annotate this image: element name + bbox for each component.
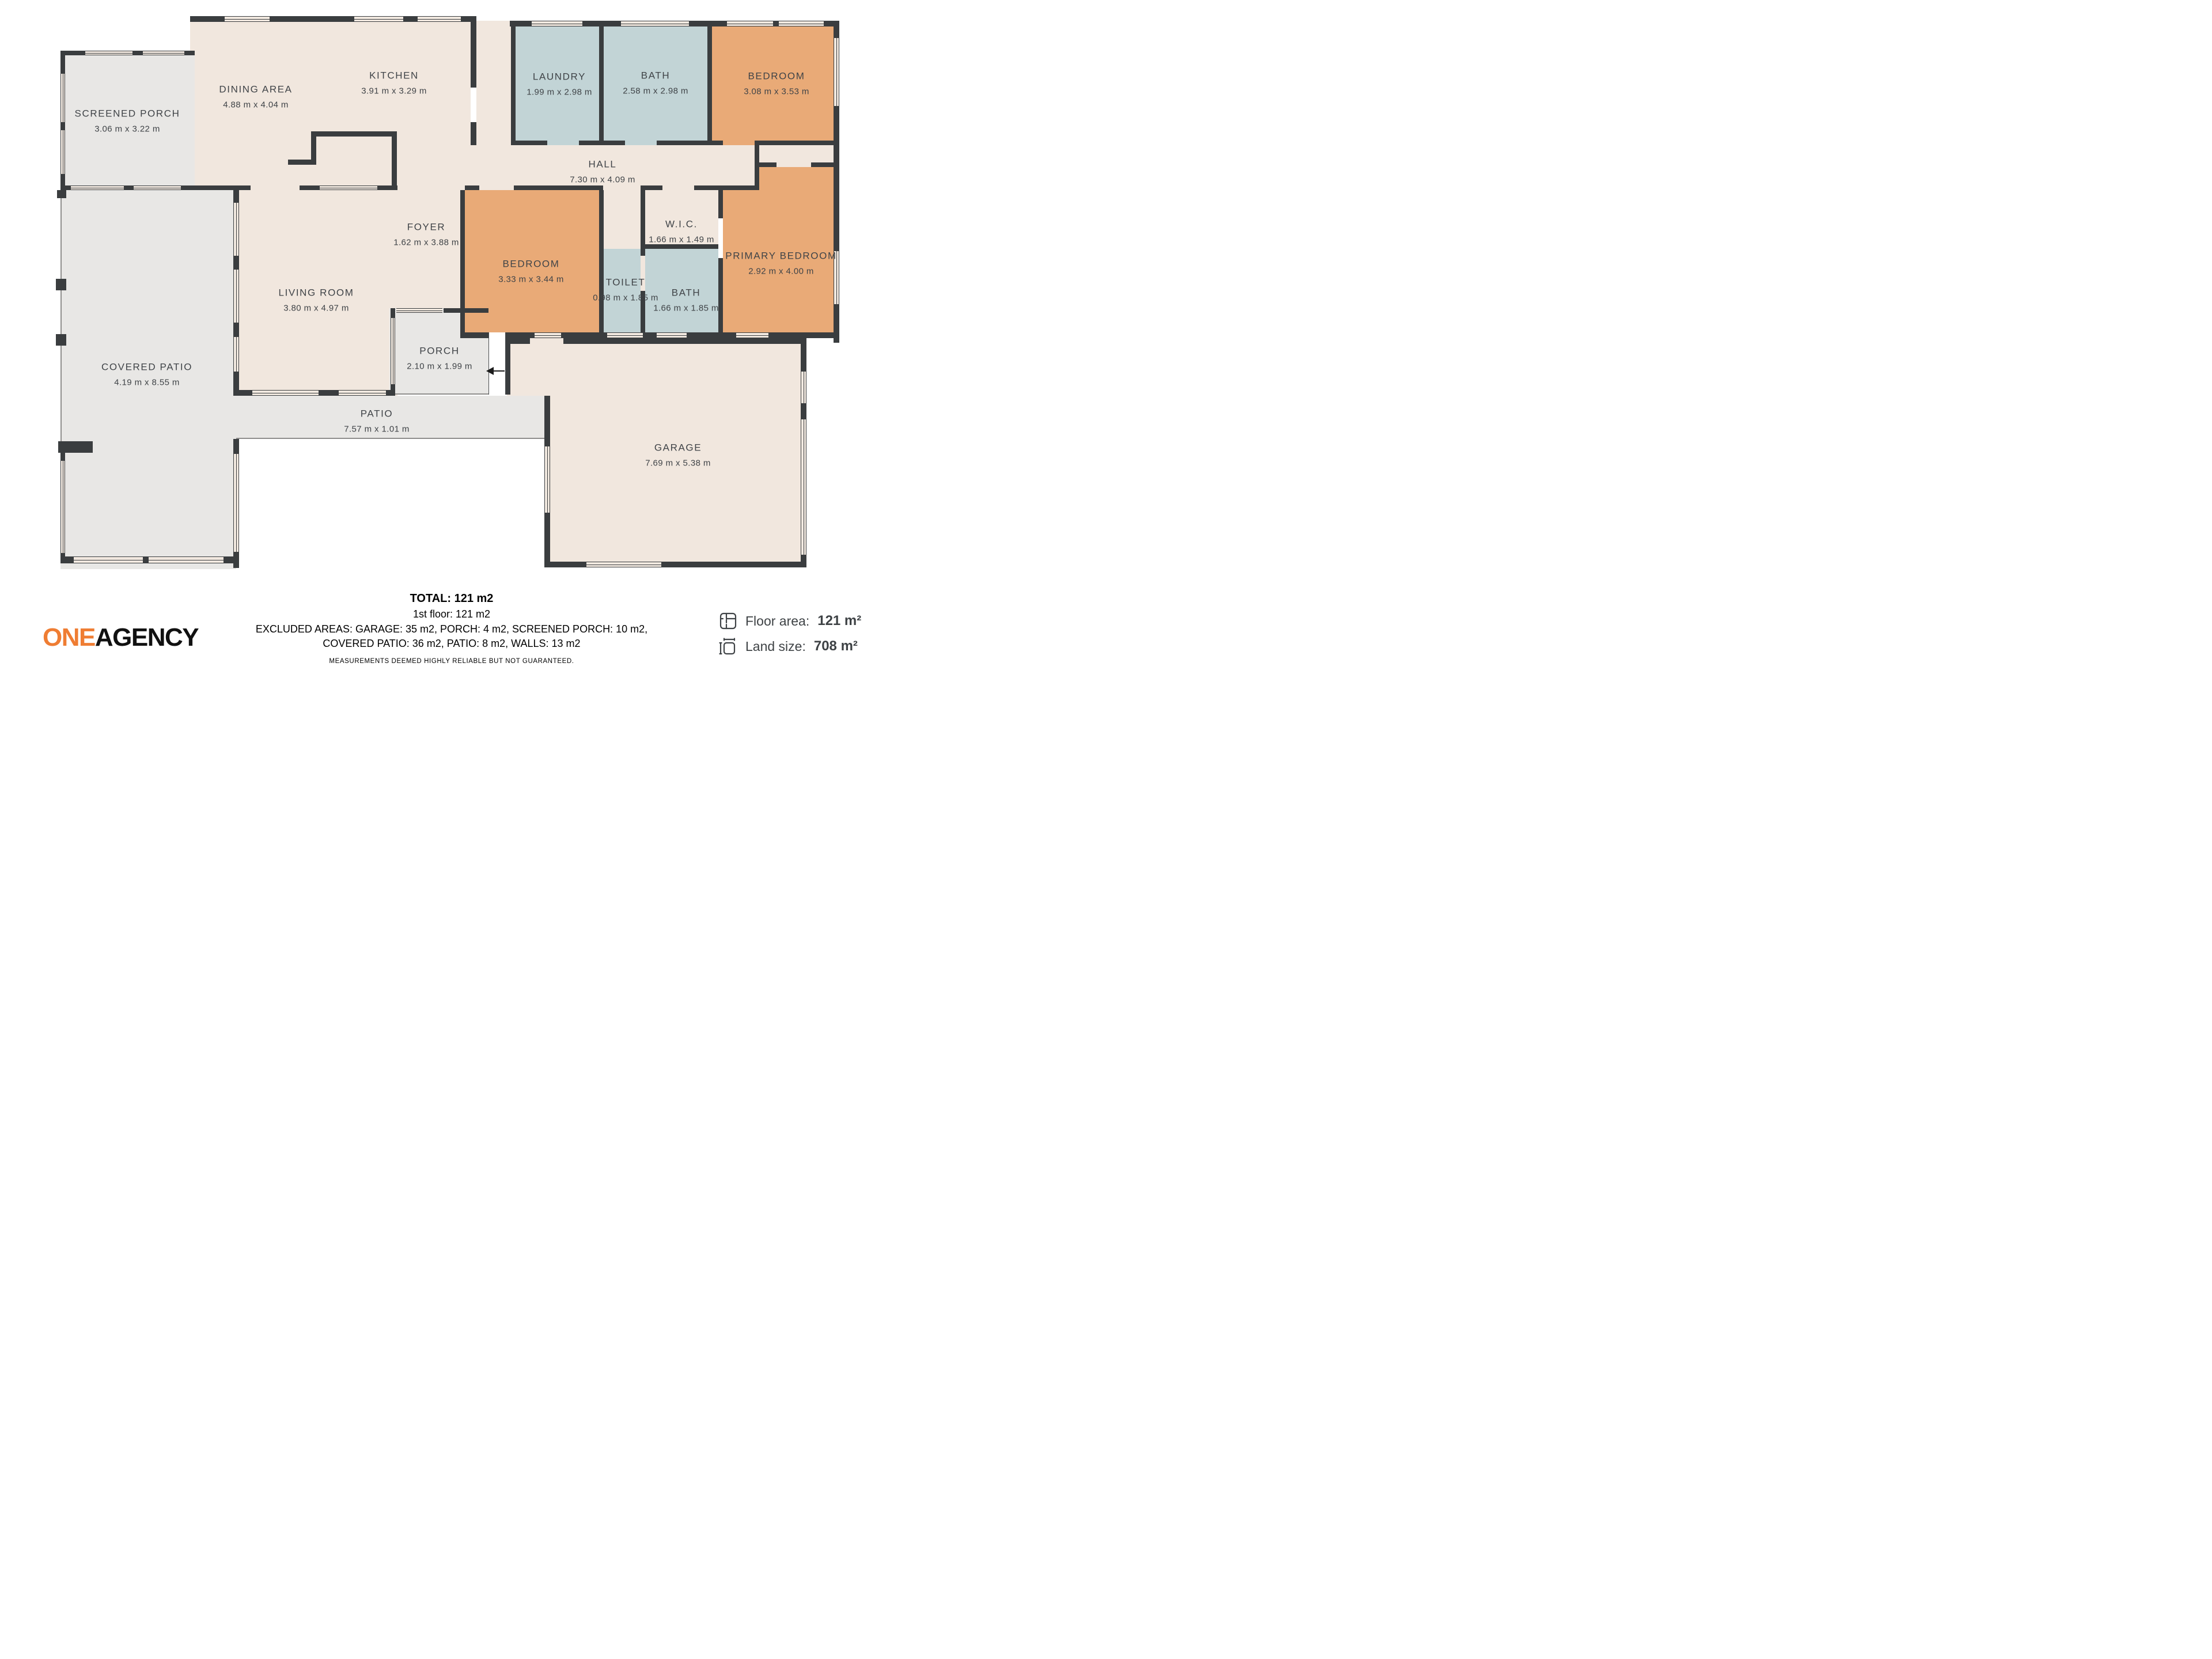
window bbox=[252, 390, 319, 396]
patio-post bbox=[56, 279, 66, 290]
window bbox=[233, 203, 239, 256]
window bbox=[801, 372, 806, 403]
room-label-kitchen: KITCHEN 3.91 m x 3.29 m bbox=[361, 70, 427, 96]
room-dims: 3.33 m x 3.44 m bbox=[498, 275, 564, 285]
wall-segment bbox=[641, 185, 662, 190]
room-label-wic: W.I.C. 1.66 m x 1.49 m bbox=[649, 219, 714, 245]
room-name: SCREENED PORCH bbox=[75, 108, 180, 120]
wall-segment bbox=[755, 145, 759, 190]
room-label-living: LIVING ROOM 3.80 m x 4.97 m bbox=[279, 287, 354, 313]
window bbox=[532, 21, 582, 26]
window bbox=[354, 16, 403, 22]
patio-edge bbox=[60, 190, 62, 442]
kitchen-wall bbox=[288, 160, 316, 165]
room-label-toilet: TOILET 0.98 m x 1.85 m bbox=[593, 277, 658, 303]
window bbox=[418, 16, 461, 22]
window bbox=[779, 21, 824, 26]
wall-segment bbox=[544, 562, 806, 567]
room-name: FOYER bbox=[393, 222, 459, 233]
wall-segment bbox=[718, 258, 723, 337]
wall-segment bbox=[563, 338, 806, 344]
room-dims: 1.66 m x 1.49 m bbox=[649, 235, 714, 245]
room-label-primary: PRIMARY BEDROOM 2.92 m x 4.00 m bbox=[725, 251, 836, 276]
room-area-garage-nook bbox=[507, 338, 547, 399]
window bbox=[233, 337, 239, 372]
floor-area-label: Floor area: bbox=[745, 613, 809, 629]
wall-segment bbox=[460, 190, 465, 337]
window bbox=[736, 332, 768, 338]
room-name: PRIMARY BEDROOM bbox=[725, 251, 836, 262]
door-window bbox=[396, 308, 442, 313]
entry-walkway bbox=[488, 332, 506, 395]
room-dims: 1.99 m x 2.98 m bbox=[527, 88, 592, 97]
window bbox=[586, 562, 661, 567]
garage-door bbox=[801, 419, 806, 555]
room-dims: 7.30 m x 4.09 m bbox=[570, 175, 635, 185]
window bbox=[233, 270, 239, 323]
patio-post bbox=[56, 334, 66, 346]
kitchen-wall bbox=[392, 131, 397, 189]
window bbox=[621, 21, 689, 26]
room-name: DINING AREA bbox=[219, 84, 292, 96]
window bbox=[535, 332, 561, 338]
disclaimer-text: MEASUREMENTS DEEMED HIGHLY RELIABLE BUT … bbox=[0, 658, 903, 665]
room-dims: 4.88 m x 4.04 m bbox=[219, 100, 292, 110]
wall-segment bbox=[471, 16, 476, 88]
window bbox=[143, 51, 184, 55]
wall-segment bbox=[460, 332, 488, 338]
wall-segment bbox=[511, 141, 547, 145]
room-label-bath-mid: BATH 1.66 m x 1.85 m bbox=[653, 287, 719, 313]
room-dims: 3.06 m x 3.22 m bbox=[75, 124, 180, 134]
room-name: BATH bbox=[623, 70, 688, 82]
room-dims: 1.62 m x 3.88 m bbox=[393, 238, 459, 248]
room-label-laundry: LAUNDRY 1.99 m x 2.98 m bbox=[527, 71, 592, 97]
wall-segment bbox=[511, 26, 516, 141]
room-name: LAUNDRY bbox=[527, 71, 592, 83]
room-label-screened-porch: SCREENED PORCH 3.06 m x 3.22 m bbox=[75, 108, 180, 134]
room-dims: 3.91 m x 3.29 m bbox=[361, 86, 427, 96]
logo-agency: AGENCY bbox=[95, 623, 198, 652]
wall-segment bbox=[58, 441, 93, 453]
room-area-primary-top bbox=[759, 167, 834, 190]
room-dims: 1.66 m x 1.85 m bbox=[653, 304, 719, 313]
land-size-value: 708 m² bbox=[814, 638, 858, 654]
window bbox=[60, 461, 65, 553]
land-size-icon bbox=[719, 637, 737, 656]
patio-edge bbox=[236, 438, 546, 439]
wall-segment bbox=[465, 185, 479, 190]
patio-post bbox=[57, 190, 66, 198]
entry-arrow-icon bbox=[492, 370, 505, 372]
entry-arrow-icon bbox=[486, 367, 494, 375]
room-label-dining: DINING AREA 4.88 m x 4.04 m bbox=[219, 84, 292, 110]
wall-segment bbox=[579, 141, 625, 145]
window bbox=[834, 38, 839, 106]
wall-segment bbox=[599, 190, 604, 337]
window bbox=[74, 556, 143, 563]
wall-segment bbox=[510, 338, 530, 344]
room-name: BATH bbox=[653, 287, 719, 299]
floor-area-value: 121 m² bbox=[817, 613, 861, 629]
door-opening bbox=[718, 218, 723, 258]
room-label-bedroom-mid: BEDROOM 3.33 m x 3.44 m bbox=[498, 259, 564, 285]
room-dims: 3.80 m x 4.97 m bbox=[279, 304, 354, 313]
window bbox=[391, 318, 395, 384]
room-name: KITCHEN bbox=[361, 70, 427, 82]
floor-area-icon bbox=[719, 612, 737, 630]
room-name: HALL bbox=[570, 159, 635, 171]
room-dims: 7.69 m x 5.38 m bbox=[645, 459, 711, 468]
land-size-stat: Land size: 708 m² bbox=[719, 637, 858, 656]
wall-segment bbox=[641, 190, 645, 249]
wall-segment bbox=[755, 141, 839, 145]
room-dims: 0.98 m x 1.85 m bbox=[593, 293, 658, 303]
wall-segment bbox=[657, 141, 712, 145]
window bbox=[60, 74, 65, 122]
window bbox=[134, 185, 181, 190]
room-label-bedroom-top: BEDROOM 3.08 m x 3.53 m bbox=[744, 71, 809, 97]
one-agency-logo: ONEAGENCY bbox=[43, 623, 198, 652]
room-dims: 2.92 m x 4.00 m bbox=[725, 267, 836, 276]
room-dims: 4.19 m x 8.55 m bbox=[101, 378, 192, 388]
wall-segment bbox=[599, 26, 604, 141]
window bbox=[60, 130, 65, 174]
wall-segment bbox=[694, 185, 755, 190]
room-name: BEDROOM bbox=[744, 71, 809, 82]
room-label-porch: PORCH 2.10 m x 1.99 m bbox=[407, 346, 472, 372]
room-name: TOILET bbox=[593, 277, 658, 289]
room-label-covered-patio: COVERED PATIO 4.19 m x 8.55 m bbox=[101, 362, 192, 388]
window bbox=[607, 332, 643, 338]
wall-segment bbox=[444, 308, 488, 313]
total-area-text: TOTAL: 121 m2 bbox=[0, 592, 903, 605]
window bbox=[225, 16, 270, 22]
window bbox=[71, 185, 124, 190]
floor-area-stat: Floor area: 121 m² bbox=[719, 612, 861, 630]
room-name: PORCH bbox=[407, 346, 472, 357]
room-dims: 2.58 m x 2.98 m bbox=[623, 86, 688, 96]
wall-segment bbox=[514, 185, 603, 190]
room-name: BEDROOM bbox=[498, 259, 564, 270]
room-name: PATIO bbox=[344, 408, 410, 420]
room-label-foyer: FOYER 1.62 m x 3.88 m bbox=[393, 222, 459, 248]
logo-one: ONE bbox=[43, 623, 95, 652]
room-name: GARAGE bbox=[645, 442, 711, 454]
wall-segment bbox=[190, 185, 251, 190]
wall-segment bbox=[471, 122, 476, 145]
wall-segment bbox=[641, 244, 723, 249]
wall-segment bbox=[718, 190, 723, 218]
room-label-garage: GARAGE 7.69 m x 5.38 m bbox=[645, 442, 711, 468]
window bbox=[727, 21, 773, 26]
wall-segment bbox=[641, 249, 645, 256]
window bbox=[544, 446, 550, 513]
window bbox=[657, 332, 687, 338]
kitchen-wall bbox=[316, 131, 396, 137]
room-name: W.I.C. bbox=[649, 219, 714, 230]
door-opening bbox=[471, 88, 476, 122]
room-label-patio: PATIO 7.57 m x 1.01 m bbox=[344, 408, 410, 434]
window bbox=[339, 390, 386, 396]
window bbox=[149, 556, 224, 563]
window bbox=[320, 185, 377, 190]
room-name: LIVING ROOM bbox=[279, 287, 354, 299]
room-label-hall: HALL 7.30 m x 4.09 m bbox=[570, 159, 635, 185]
wall-segment bbox=[759, 162, 777, 167]
room-dims: 7.57 m x 1.01 m bbox=[344, 425, 410, 434]
wall-segment bbox=[712, 141, 723, 145]
room-label-bath-top: BATH 2.58 m x 2.98 m bbox=[623, 70, 688, 96]
room-dims: 2.10 m x 1.99 m bbox=[407, 362, 472, 372]
land-size-label: Land size: bbox=[745, 639, 806, 654]
wall-segment bbox=[811, 162, 839, 167]
porch-edge bbox=[389, 393, 488, 395]
window bbox=[233, 454, 239, 552]
wall-segment bbox=[707, 26, 712, 141]
room-name: COVERED PATIO bbox=[101, 362, 192, 373]
room-dims: 3.08 m x 3.53 m bbox=[744, 87, 809, 97]
window bbox=[85, 51, 132, 55]
floor-plan-page: SCREENED PORCH 3.06 m x 3.22 m DINING AR… bbox=[0, 0, 903, 677]
